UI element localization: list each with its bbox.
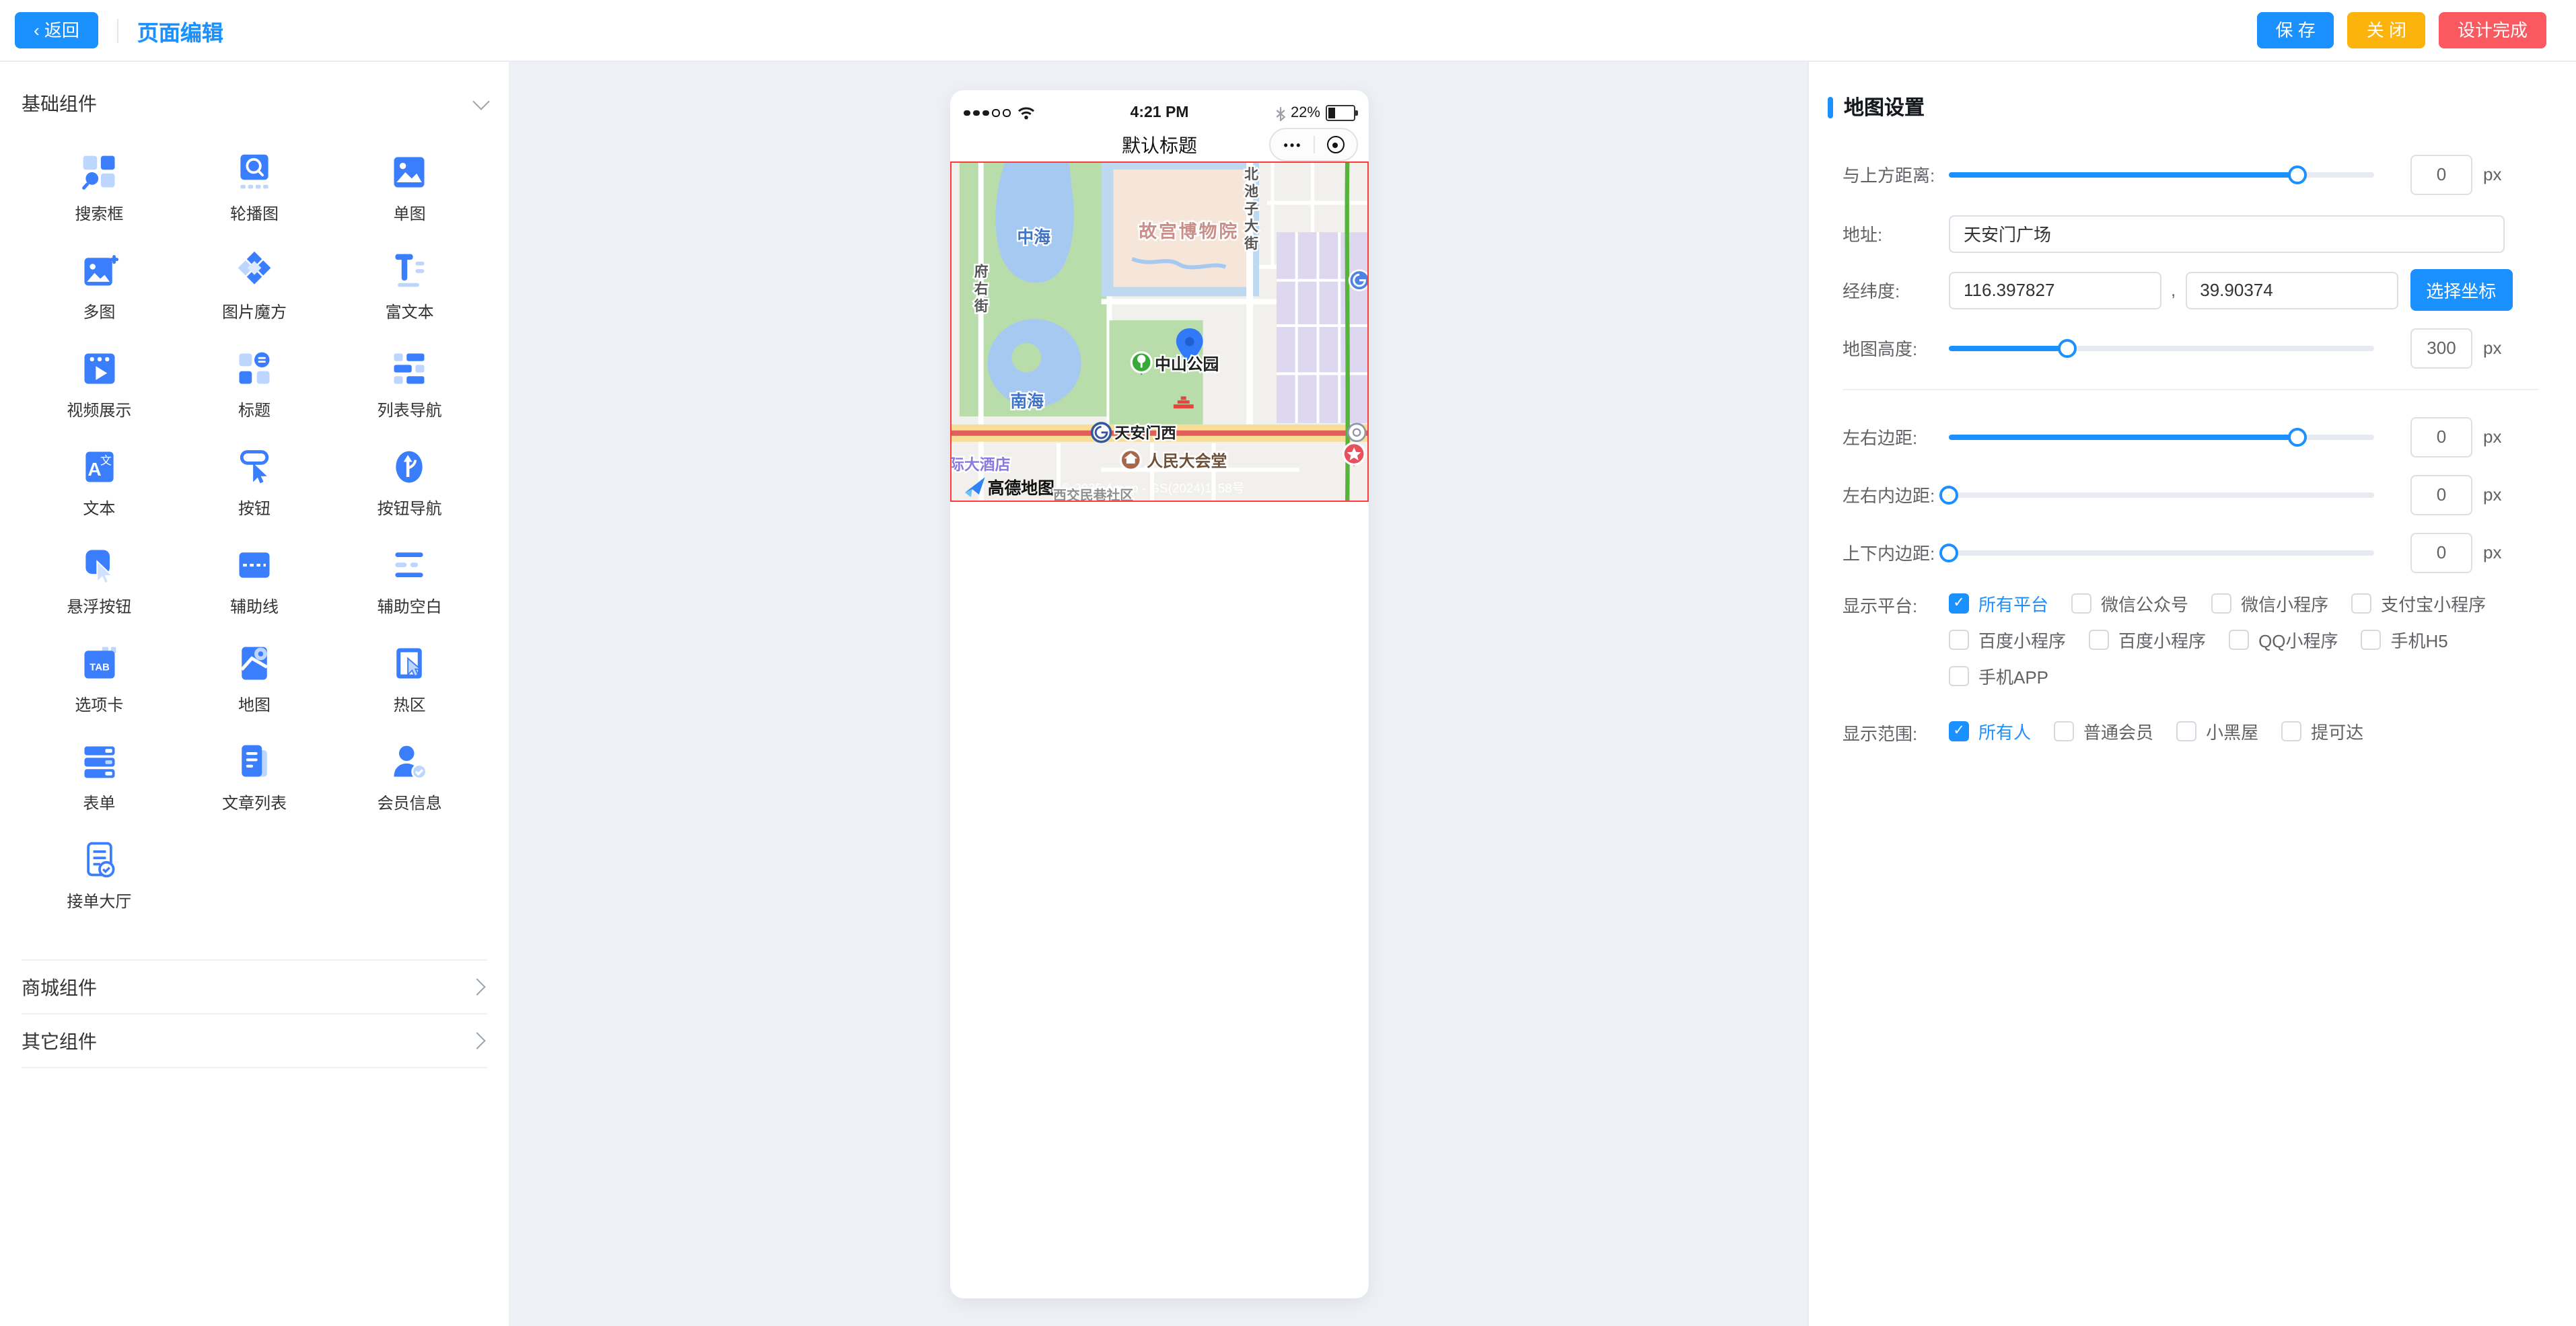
coords-separator: , [2171,280,2176,300]
component-label: 按钮 [238,496,271,519]
component-label: 文本 [83,496,115,519]
checkbox-tikeda[interactable]: 提可达 [2281,719,2363,744]
capsule-more-button[interactable]: ••• [1271,129,1313,160]
platforms-label: 显示平台: [1842,592,1949,618]
component-search-box[interactable]: 搜索框 [22,139,177,237]
label-nanhai: 南海 [1010,392,1044,411]
label-fuyou-street: 府 右 街 [974,264,989,315]
label-tiananmen-west: 天安门西 [1114,425,1176,442]
component-multi-image[interactable]: 多图 [22,237,177,335]
lr-padding-slider[interactable] [1949,492,2374,497]
component-aux-line[interactable]: 辅助线 [177,531,332,630]
slider-knob[interactable] [2059,338,2077,357]
svg-text:街: 街 [1244,235,1258,252]
aux-line-icon [234,544,275,585]
slider-knob[interactable] [1939,543,1958,562]
amap-logo-text: 高德地图 [988,478,1054,498]
checkbox-baidu-miniprogram-2[interactable]: 百度小程序 [2089,627,2206,653]
section-mall-label: 商城组件 [22,973,97,1000]
checkbox-label: 微信公众号 [2101,591,2188,616]
lr-margin-label: 左右边距: [1842,424,1949,449]
page-editor-app: ‹ 返回 页面编辑 保 存 关 闭 设计完成 基础组件 搜索框 轮播图 单图 [0,0,2576,1326]
checkbox-label: 百度小程序 [1978,627,2066,653]
slider-knob[interactable] [1939,485,1958,504]
carousel-icon [234,151,275,192]
component-label: 图片魔方 [222,299,287,322]
component-order-hall[interactable]: 接单大厅 [22,826,177,924]
component-label: 列表导航 [378,398,442,420]
row-lr-margin: 左右边距: px [1842,416,2549,457]
tb-padding-label: 上下内边距: [1842,540,1949,565]
checkbox-label: 普通会员 [2083,719,2153,744]
map-height-input[interactable] [2410,328,2472,368]
page-title: 页面编辑 [137,14,223,46]
component-label: 按钮导航 [378,496,442,519]
target-icon [1327,136,1345,153]
lr-padding-input[interactable] [2410,474,2472,515]
component-label: 会员信息 [378,790,442,813]
address-label: 地址: [1842,221,1949,246]
checkbox-baidu-miniprogram[interactable]: 百度小程序 [1949,627,2066,653]
slider-knob[interactable] [2288,427,2307,446]
label-hotel: 际大酒店 [952,455,1010,473]
svg-text:右: 右 [974,281,989,297]
section-basic-label: 基础组件 [22,90,97,117]
component-label: 选项卡 [75,692,123,715]
unit-px: px [2483,427,2501,447]
svg-text:府: 府 [974,264,989,280]
form-icon [79,741,119,781]
svg-text:大: 大 [1244,218,1258,234]
svg-text:北: 北 [1244,167,1258,182]
component-label: 标题 [238,398,271,420]
phone-preview: 4:21 PM 22% 默认标题 ••• [950,90,1369,1298]
row-lr-padding: 左右内边距: px [1842,474,2549,515]
panel-divider [1842,389,2538,390]
component-aux-blank[interactable]: 辅助空白 [332,531,487,630]
accent-bar [1828,96,1833,118]
hot-zone-icon [390,642,430,683]
label-zhonghai: 中海 [1017,227,1050,247]
row-top-margin: 与上方距离: px [1842,153,2549,195]
float-button-icon [79,544,119,585]
svg-text:A: A [87,458,101,479]
component-article-list[interactable]: 文章列表 [177,728,332,826]
checkbox-icon [2361,630,2382,650]
svg-text:街: 街 [974,298,989,314]
unit-px: px [2483,338,2501,358]
checkbox-label: 所有平台 [1978,591,2048,616]
checkbox-wechat-official[interactable]: 微信公众号 [2071,591,2188,616]
component-rich-text[interactable]: 富文本 [332,237,487,335]
top-margin-input[interactable] [2410,154,2472,194]
checkbox-regular-member[interactable]: 普通会员 [2054,719,2153,744]
checkbox-label: 小黑屋 [2206,719,2258,744]
checkbox-everyone[interactable]: 所有人 [1949,719,2031,744]
component-map[interactable]: 地图 [177,630,332,728]
checkbox-icon [2229,630,2249,650]
video-icon [79,348,119,388]
sidebar-sections: 商城组件 其它组件 [22,959,487,1068]
tb-padding-slider[interactable] [1949,550,2374,555]
checkbox-blacklist[interactable]: 小黑屋 [2176,719,2258,744]
button-icon [234,446,275,486]
search-box-icon [79,151,119,192]
phone-nav-bar: 默认标题 ••• [950,126,1369,163]
component-label: 接单大厅 [67,889,131,912]
component-label: 文章列表 [222,790,287,813]
checkbox-label: 支付宝小程序 [2381,591,2486,616]
order-hall-icon [79,839,119,879]
component-tab[interactable]: TAB 选项卡 [22,630,177,728]
more-dots-icon: ••• [1281,138,1303,151]
svg-text:TAB: TAB [89,661,109,672]
component-member-info[interactable]: 会员信息 [332,728,487,826]
checkbox-label: 所有人 [1978,719,2031,744]
component-label: 视频展示 [67,398,131,420]
component-list-nav[interactable]: 列表导航 [332,335,487,433]
checkbox-label: 提可达 [2311,719,2363,744]
capsule-exit-button[interactable] [1314,129,1357,160]
map-height-slider[interactable] [1949,345,2374,351]
section-basic-components[interactable]: 基础组件 [22,77,487,131]
checkbox-label: QQ小程序 [2258,627,2338,653]
checkbox-icon [2211,593,2231,614]
checkbox-label: 手机H5 [2391,627,2448,653]
checkbox-icon [1949,721,1969,741]
unit-px: px [2483,164,2501,184]
component-label: 辅助空白 [378,594,442,617]
checkbox-icon [2351,593,2371,614]
component-label: 单图 [394,201,426,224]
status-time: 4:21 PM [950,105,1369,121]
checkbox-icon [2176,721,2196,741]
multi-image-icon [79,250,119,290]
component-grid: 搜索框 轮播图 单图 多图 图片魔方 富文本 [0,131,509,924]
checkbox-icon [2089,630,2109,650]
row-tb-padding: 上下内边距: px [1842,531,2549,573]
component-float-button[interactable]: 悬浮按钮 [22,531,177,630]
component-label: 富文本 [386,299,434,322]
checkbox-alipay-miniprogram[interactable]: 支付宝小程序 [2351,591,2486,616]
component-label: 轮播图 [230,201,279,224]
label-gugong: 故宫博物院 [1139,221,1239,242]
lr-margin-slider[interactable] [1949,434,2374,439]
checkbox-wechat-miniprogram[interactable]: 微信小程序 [2211,591,2328,616]
great-hall-pin-icon [1120,450,1141,472]
range-label: 显示范围: [1842,720,1949,745]
component-label: 表单 [83,790,115,813]
miniprogram-capsule: ••• [1269,128,1358,161]
slider-knob[interactable] [2288,165,2307,184]
article-list-icon [234,741,275,781]
longitude-input[interactable] [1949,271,2161,309]
map-component-selected[interactable]: 故宫博物院 中海 南海 中山公园 天安门西 人民大会堂 际大酒店 高德地图 © … [950,161,1369,502]
section-other-label: 其它组件 [22,1027,97,1054]
map-settings-panel: 地图设置 与上方距离: px 地址: 经纬度: , 选择坐标 地图高度: px [1808,61,2576,1326]
metro-station-icon [1349,270,1367,291]
map-height-label: 地图高度: [1842,335,1949,361]
checkbox-label: 百度小程序 [2118,627,2206,653]
svg-text:子: 子 [1244,201,1258,217]
component-title[interactable]: 标题 [177,335,332,433]
battery-icon [1326,105,1355,121]
platforms-group: 所有平台 微信公众号 微信小程序 支付宝小程序 百度小程序 百度小程序 QQ小程… [1949,591,2509,689]
checkbox-icon [1949,630,1969,650]
top-margin-slider[interactable] [1949,172,2374,177]
map-icon [234,642,275,683]
chevron-right-icon [468,1032,485,1049]
list-nav-icon [390,348,430,388]
component-button-nav[interactable]: 按钮导航 [332,433,487,531]
component-label: 搜索框 [75,201,123,224]
checkbox-label: 手机APP [1978,663,2048,689]
range-group: 所有人 普通会员 小黑屋 提可达 [1949,719,2386,744]
lr-padding-label: 左右内边距: [1842,482,1949,507]
checkbox-icon [2281,721,2301,741]
pick-coords-button[interactable]: 选择坐标 [2410,269,2512,311]
topbar-divider [117,18,118,42]
single-image-icon [390,151,430,192]
address-input[interactable] [1949,215,2505,252]
image-cube-icon [234,250,275,290]
panel-title: 地图设置 [1844,93,1925,121]
button-nav-icon [390,446,430,486]
component-single-image[interactable]: 单图 [332,139,487,237]
component-carousel[interactable]: 轮播图 [177,139,332,237]
unit-px: px [2483,542,2501,562]
component-sidebar: 基础组件 搜索框 轮播图 单图 多图 图片魔方 [0,61,509,1326]
component-label: 多图 [83,299,115,322]
component-image-cube[interactable]: 图片魔方 [177,237,332,335]
topbar: ‹ 返回 页面编辑 保 存 关 闭 设计完成 [0,0,2576,62]
label-zhongshan-park: 中山公园 [1155,356,1219,374]
phone-page-title: 默认标题 [1122,131,1197,158]
rich-text-icon [390,250,430,290]
row-map-height: 地图高度: px [1842,327,2549,369]
metro-west-icon [1092,423,1111,442]
unit-px: px [2483,484,2501,505]
top-margin-label: 与上方距离: [1842,161,1949,187]
row-display-range: 显示范围: 所有人 普通会员 小黑屋 提可达 [1842,719,2549,745]
checkbox-icon [1949,666,1969,686]
title-icon [234,348,275,388]
component-label: 悬浮按钮 [67,594,131,617]
checkbox-label: 微信小程序 [2241,591,2328,616]
component-label: 地图 [238,692,271,715]
checkbox-qq-miniprogram[interactable]: QQ小程序 [2229,627,2338,653]
member-info-icon [390,741,430,781]
topbar-actions: 保 存 关 闭 设计完成 [2256,12,2546,48]
section-mall-components[interactable]: 商城组件 [22,959,487,1013]
phone-status-bar: 4:21 PM 22% [950,90,1369,126]
aux-blank-icon [390,544,430,585]
save-button[interactable]: 保 存 [2256,12,2334,48]
row-platforms: 显示平台: 所有平台 微信公众号 微信小程序 支付宝小程序 百度小程序 百度小程… [1842,591,2549,689]
component-button[interactable]: 按钮 [177,433,332,531]
component-hot-zone[interactable]: 热区 [332,630,487,728]
tb-padding-input[interactable] [2410,532,2472,573]
design-finish-button[interactable]: 设计完成 [2439,12,2546,48]
row-coordinates: 经纬度: , 选择坐标 [1842,269,2549,311]
checkbox-mobile-h5[interactable]: 手机H5 [2361,627,2448,653]
component-video[interactable]: 视频展示 [22,335,177,433]
component-label: 热区 [394,692,426,715]
component-label: 辅助线 [230,594,279,617]
tab-icon: TAB [79,642,119,683]
label-great-hall: 人民大会堂 [1147,451,1227,470]
section-other-components[interactable]: 其它组件 [22,1013,487,1068]
checkbox-icon [2054,721,2074,741]
component-text[interactable]: A文 文本 [22,433,177,531]
amap-preview: 故宫博物院 中海 南海 中山公园 天安门西 人民大会堂 际大酒店 高德地图 © … [952,163,1367,501]
coords-label: 经纬度: [1842,277,1949,303]
checkbox-icon [2071,593,2091,614]
label-beichizi-street: 北 池 子 大 街 [1244,167,1258,252]
back-button[interactable]: ‹ 返回 [15,12,98,48]
panel-header: 地图设置 [1828,93,1925,121]
text-icon: A文 [79,446,119,486]
lr-margin-input[interactable] [2410,416,2472,457]
row-address: 地址: [1842,213,2549,254]
close-button[interactable]: 关 闭 [2348,12,2425,48]
component-form[interactable]: 表单 [22,728,177,826]
label-community: 西交民巷社区 [1053,488,1133,501]
svg-text:池: 池 [1244,184,1258,200]
latitude-input[interactable] [2185,271,2398,309]
chevron-down-icon [472,92,489,109]
chevron-right-icon [468,978,485,995]
svg-text:文: 文 [100,453,111,466]
checkbox-all-platforms[interactable]: 所有平台 [1949,591,2048,616]
roundabout-icon [1348,424,1365,441]
checkbox-mobile-app[interactable]: 手机APP [1949,663,2048,689]
checkbox-icon [1949,593,1969,614]
